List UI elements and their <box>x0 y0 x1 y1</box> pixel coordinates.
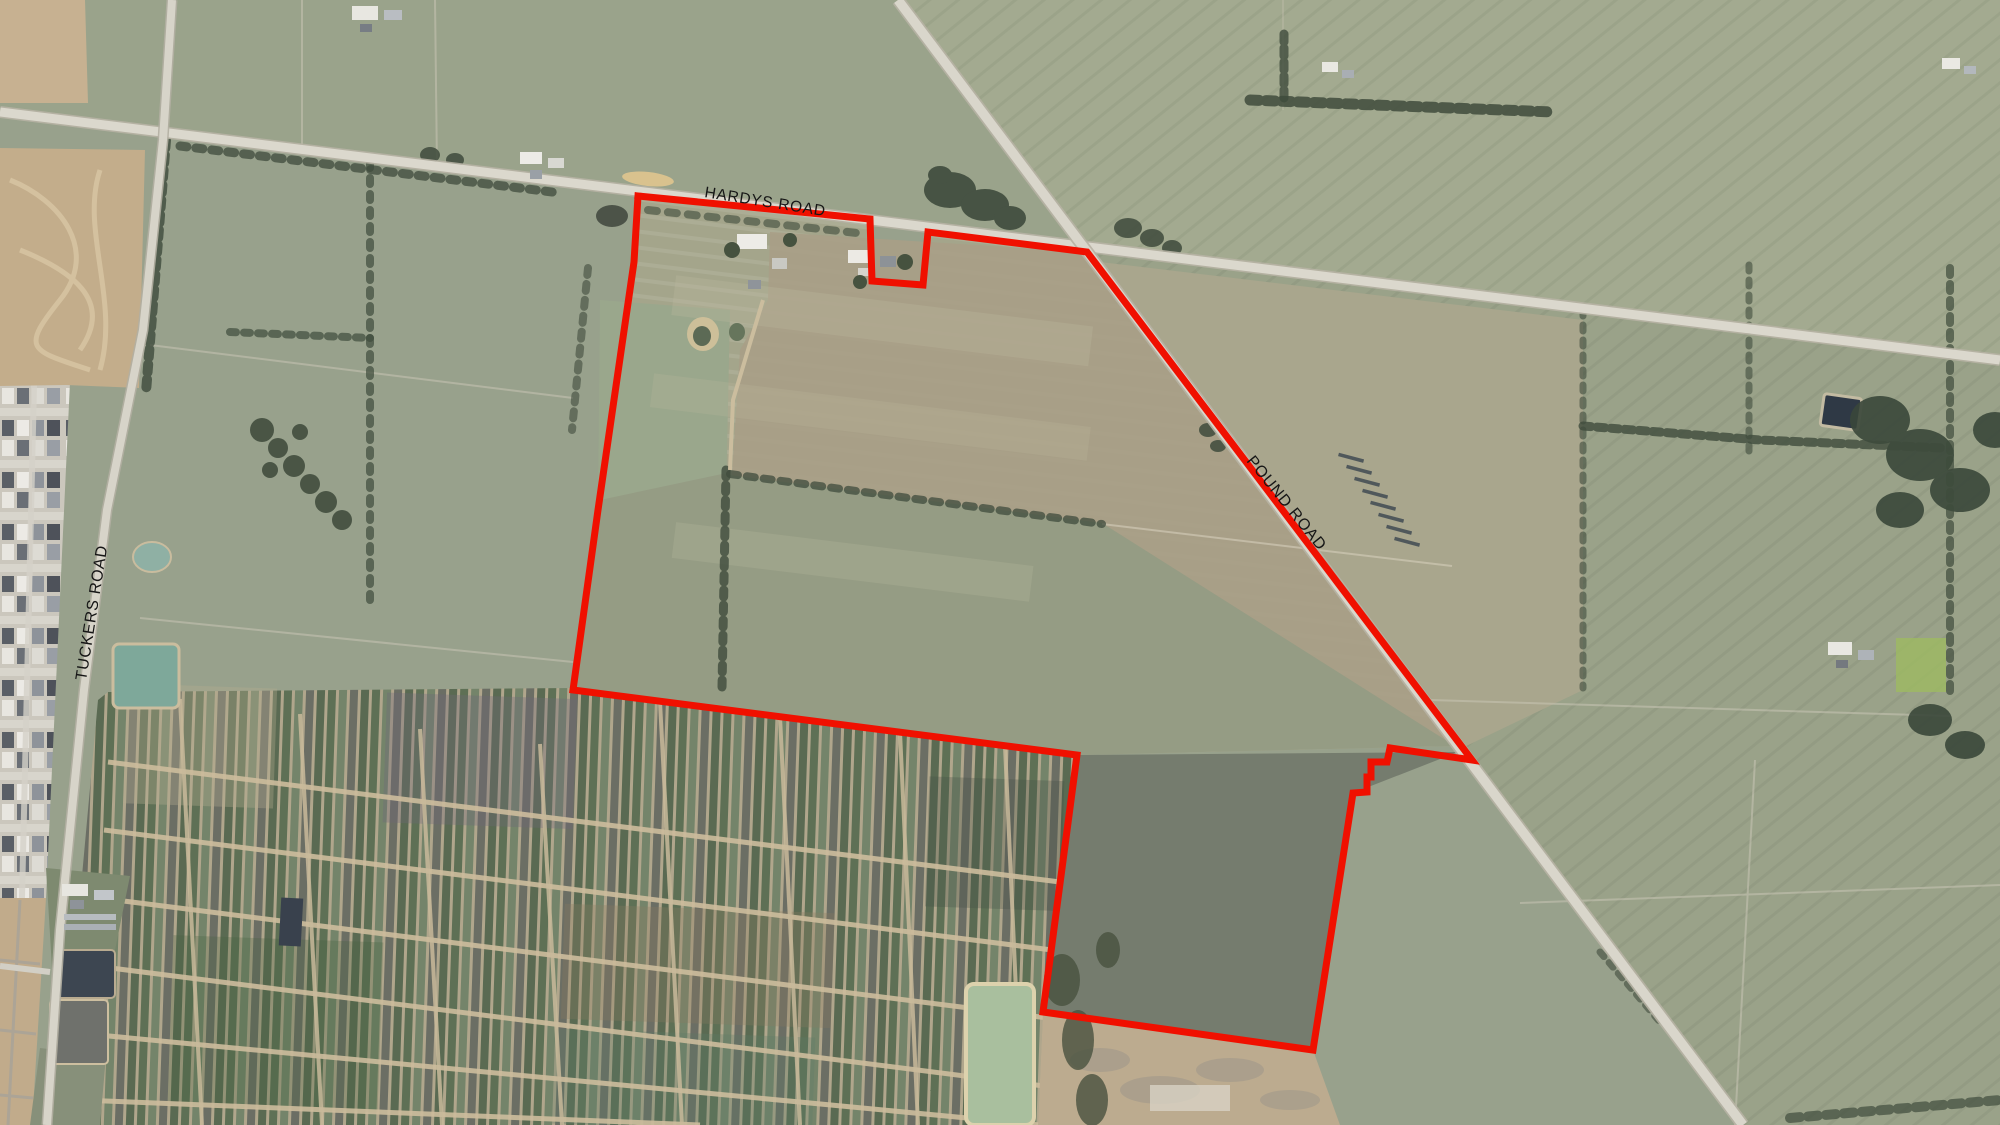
turquoise-dam <box>113 644 179 708</box>
field-layer <box>0 0 2000 1125</box>
aerial-map: HARDYS ROAD POUND ROAD TUCKERS ROAD <box>0 0 2000 1125</box>
map-canvas: HARDYS ROAD POUND ROAD TUCKERS ROAD <box>0 0 2000 1125</box>
quarry-area <box>0 0 88 103</box>
green-pond <box>966 984 1034 1125</box>
dark-pond <box>57 950 115 998</box>
